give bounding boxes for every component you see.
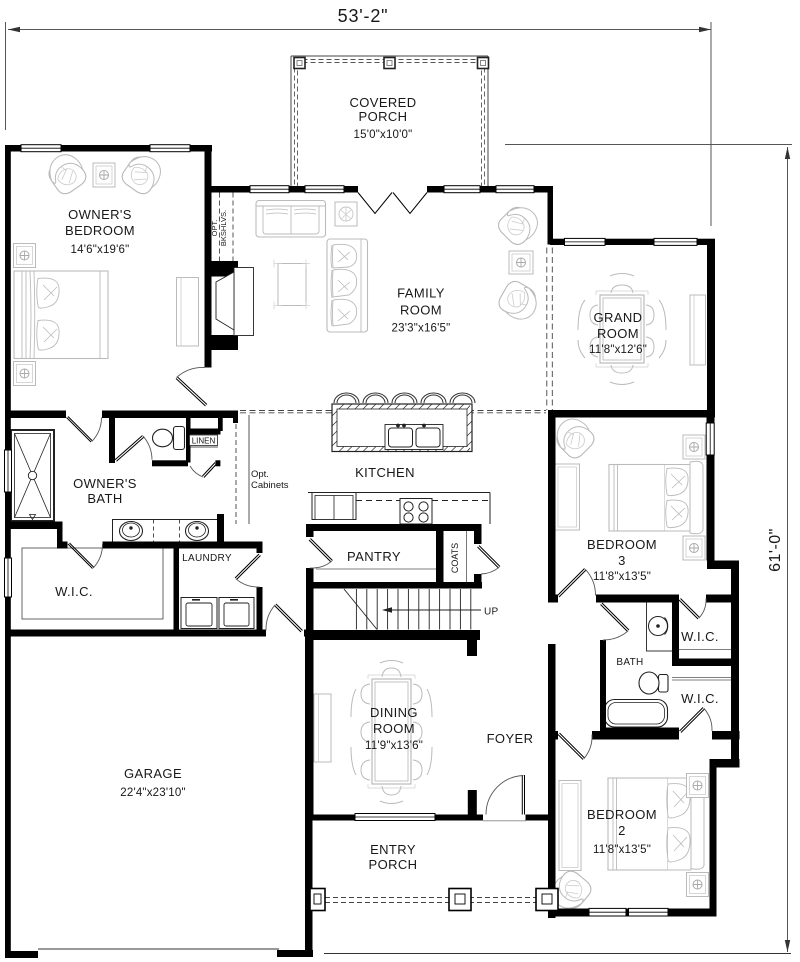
svg-text:COVERED: COVERED (349, 95, 416, 110)
svg-text:UP: UP (484, 607, 499, 618)
svg-text:Cabinets: Cabinets (251, 480, 289, 491)
svg-text:BEDROOM: BEDROOM (587, 537, 657, 552)
svg-text:53'-2": 53'-2" (338, 6, 389, 26)
svg-text:ROOM: ROOM (373, 721, 415, 736)
svg-text:LINEN: LINEN (192, 437, 216, 446)
svg-text:COATS: COATS (450, 543, 460, 573)
svg-text:ROOM: ROOM (597, 326, 639, 341)
svg-text:LAUNDRY: LAUNDRY (182, 553, 232, 564)
svg-text:61'-0": 61'-0" (767, 528, 784, 572)
svg-text:GARAGE: GARAGE (124, 766, 182, 781)
svg-text:OWNER'S: OWNER'S (68, 207, 132, 222)
svg-text:3: 3 (618, 553, 626, 568)
svg-text:BEDROOM: BEDROOM (65, 223, 135, 238)
svg-text:11'8"x12'6": 11'8"x12'6" (589, 344, 647, 356)
svg-text:OPT.: OPT. (210, 220, 219, 237)
svg-text:BATH: BATH (616, 657, 643, 668)
svg-text:PORCH: PORCH (359, 109, 408, 124)
svg-text:GRAND: GRAND (594, 310, 643, 325)
svg-text:11'9"x13'6": 11'9"x13'6" (365, 740, 423, 752)
svg-text:22'4"x23'10": 22'4"x23'10" (120, 787, 185, 799)
svg-text:W.I.C.: W.I.C. (681, 691, 719, 706)
svg-text:11'8"x13'5": 11'8"x13'5" (593, 844, 651, 856)
svg-text:KITCHEN: KITCHEN (355, 465, 415, 480)
svg-text:DINING: DINING (370, 705, 418, 720)
svg-text:PORCH: PORCH (369, 857, 418, 872)
svg-text:BEDROOM: BEDROOM (587, 807, 657, 822)
svg-text:W.I.C.: W.I.C. (55, 584, 93, 599)
svg-text:2: 2 (618, 823, 626, 838)
svg-text:15'0"x10'0": 15'0"x10'0" (354, 129, 413, 141)
svg-text:W.I.C.: W.I.C. (681, 629, 719, 644)
svg-text:FOYER: FOYER (487, 731, 534, 746)
svg-text:ROOM: ROOM (400, 303, 442, 318)
svg-text:ENTRY: ENTRY (370, 842, 416, 857)
svg-text:23'3"x16'5": 23'3"x16'5" (392, 323, 451, 335)
svg-text:Opt.: Opt. (251, 469, 269, 480)
svg-text:FAMILY: FAMILY (397, 286, 445, 301)
svg-text:OWNER'S: OWNER'S (73, 476, 137, 491)
svg-text:11'8"x13'5": 11'8"x13'5" (593, 571, 651, 583)
svg-text:BKSHLVS.: BKSHLVS. (219, 210, 228, 246)
svg-text:14'6"x19'6": 14'6"x19'6" (71, 244, 130, 256)
svg-text:BATH: BATH (87, 491, 122, 506)
svg-text:PANTRY: PANTRY (347, 549, 401, 564)
